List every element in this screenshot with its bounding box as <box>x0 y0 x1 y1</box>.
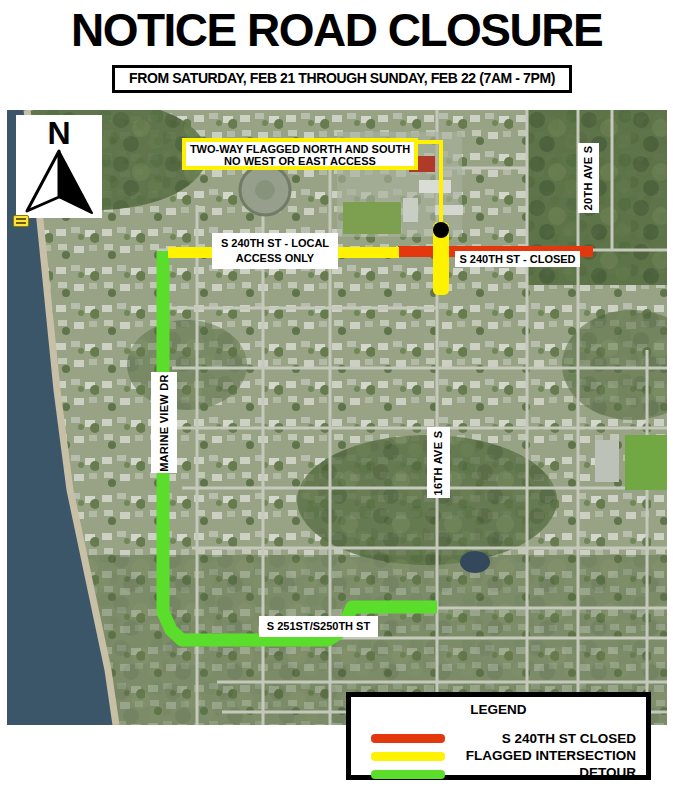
callout-line1: TWO-WAY FLAGGED NORTH AND SOUTH <box>186 143 414 155</box>
route-detour <box>163 251 437 640</box>
label-20th-ave: 20TH AVE S <box>578 143 599 213</box>
label-local-access: S 240TH ST - LOCAL ACCESS ONLY <box>212 233 338 269</box>
label-marine-view-dr: MARINE VIEW DR <box>151 372 177 473</box>
legend-label-detour: DETOUR <box>579 764 636 781</box>
label-detour-streets: S 251ST/S250TH ST <box>259 616 378 637</box>
page-title: NOTICE ROAD CLOSURE <box>0 6 673 54</box>
label-16th-ave: 16TH AVE S <box>427 427 450 498</box>
legend-swatch-closed <box>371 734 445 743</box>
intersection-dot <box>433 222 449 238</box>
label-closed-street: S 240TH ST - CLOSED <box>455 251 580 267</box>
legend-swatch-flagged <box>371 752 445 761</box>
callout-line2: NO WEST OR EAST ACCESS <box>186 155 414 167</box>
road-closure-flyer: NOTICE ROAD CLOSURE FROM SATURDAY, FEB 2… <box>0 0 673 803</box>
legend: LEGEND S 240TH ST CLOSED FLAGGED INTERSE… <box>346 692 651 780</box>
legend-label-closed: S 240TH ST CLOSED <box>502 730 636 747</box>
north-label: N <box>16 117 102 149</box>
legend-label-flagged: FLAGGED INTERSECTION <box>466 747 636 764</box>
callout-connector-line <box>418 142 441 228</box>
map-note-icon <box>13 215 29 227</box>
legend-swatch-detour <box>371 770 445 779</box>
compass-icon <box>19 149 99 215</box>
legend-title: LEGEND <box>351 702 646 717</box>
date-banner: FROM SATURDAY, FEB 21 THROUGH SUNDAY, FE… <box>112 65 572 93</box>
north-arrow: N <box>16 115 102 218</box>
flagged-callout: TWO-WAY FLAGGED NORTH AND SOUTH NO WEST … <box>182 138 418 170</box>
